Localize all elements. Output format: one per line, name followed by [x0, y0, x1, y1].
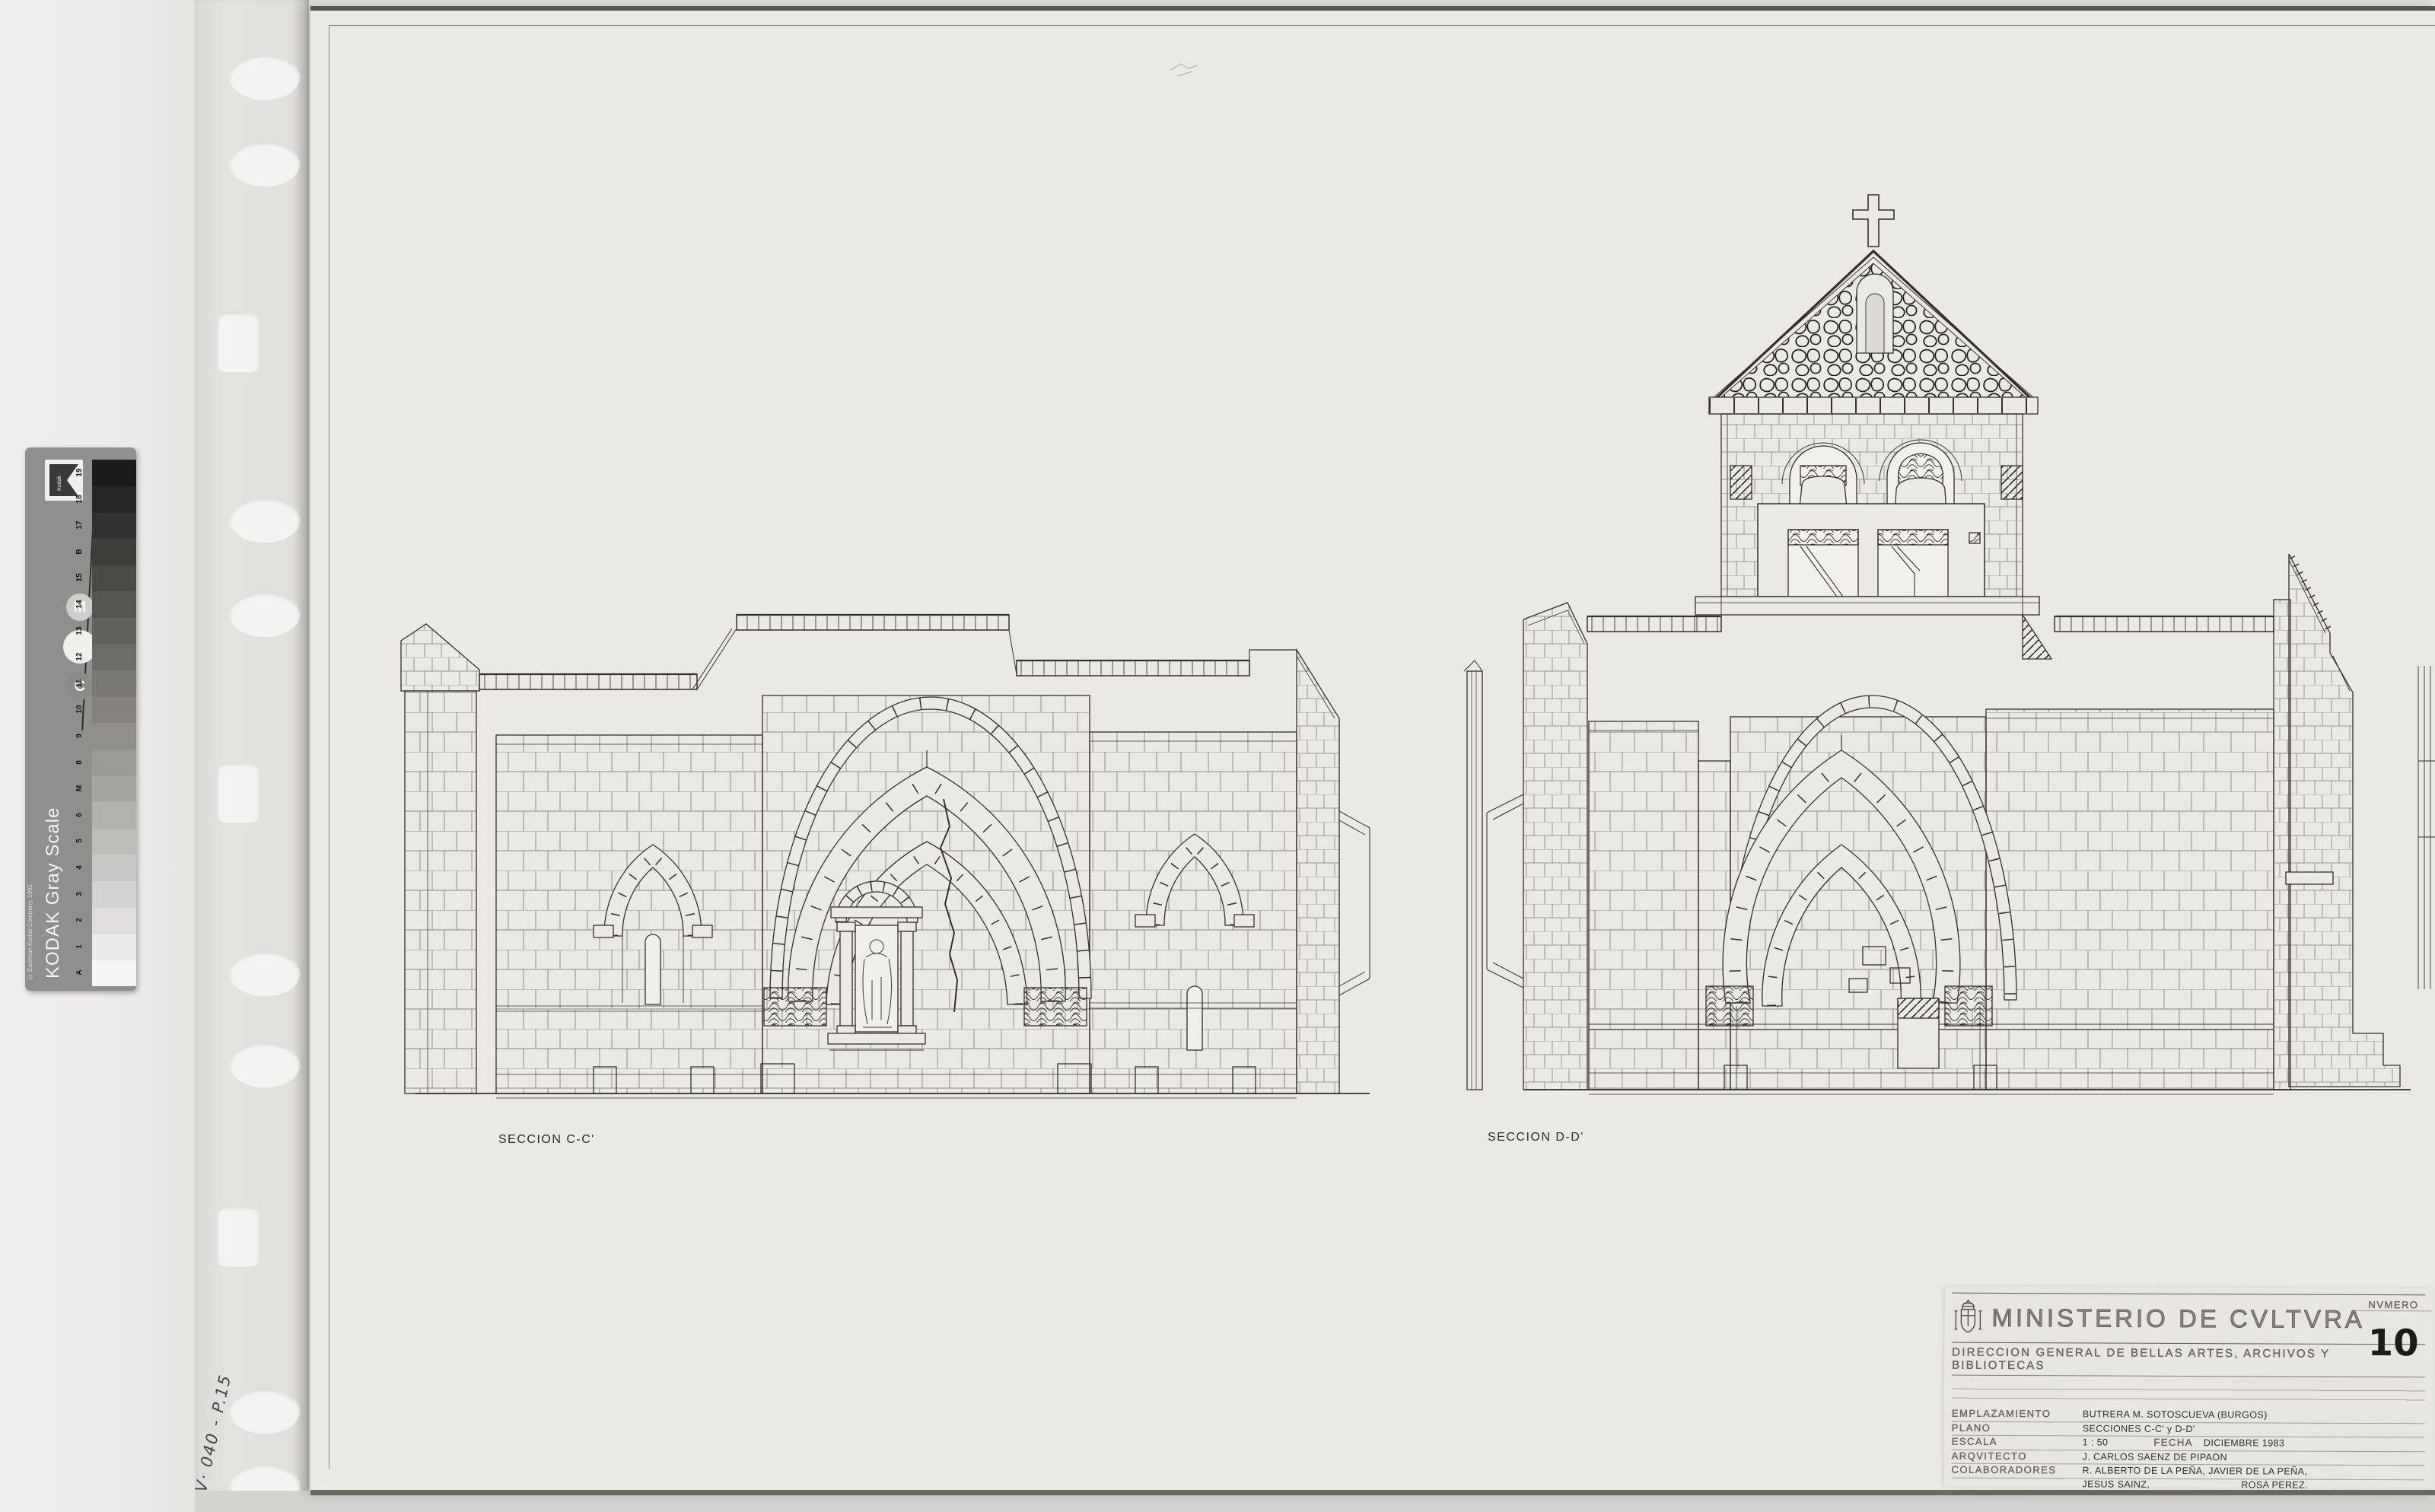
gray-patch-label: 17 [75, 515, 86, 535]
tower-base-ledge [1695, 597, 2039, 615]
church-sections-drawing [0, 0, 2435, 1512]
field-value: R. ALBERTO DE LA PEÑA, JAVIER DE LA PEÑA… [2082, 1465, 2307, 1476]
gray-patch-M [92, 775, 136, 802]
title-block-row: JESUS SAINZ,ROSA PEREZ. [1951, 1478, 2424, 1494]
gray-patch-B [92, 539, 136, 565]
field-value: JESUS SAINZ, [2082, 1479, 2150, 1489]
field-value: 1 : 50 [2083, 1437, 2109, 1447]
field-label: FECHA [2153, 1437, 2193, 1448]
gray-patch-19 [92, 460, 136, 486]
gray-patch-label: 19 [75, 463, 86, 482]
field-value: ROSA PEREZ. [2241, 1479, 2308, 1490]
kodak-gray-scale-strip: Kodak M C KODAK Gray Scale © Eastman Kod… [25, 447, 136, 991]
dd-left-wall [1589, 721, 1698, 1090]
gray-patch-10 [92, 696, 136, 723]
gray-patch-2 [92, 907, 136, 934]
gray-patch-label: 2 [75, 910, 86, 930]
gray-patch-3 [92, 881, 136, 908]
dd-right-wall [1986, 709, 2274, 1090]
dd-bell-gable [1695, 195, 2051, 659]
gray-patch-label: 18 [75, 489, 86, 509]
gray-patch-14 [92, 591, 136, 618]
field-value: BUTRERA M. SOTOSCUEVA (BURGOS) [2083, 1409, 2268, 1420]
gray-patch-label: 14 [75, 594, 86, 614]
field-label: COLABORADORES [1951, 1464, 2082, 1476]
dd-right-buttress [2286, 554, 2400, 1087]
section-dd-label: SECCION D-D' [1488, 1131, 1584, 1144]
section-cc-label: SECCION C-C' [498, 1133, 595, 1147]
cc-carved-capital-right [1024, 988, 1087, 1026]
gray-patch-label: 6 [75, 805, 86, 825]
dd-carved-capital-right [1945, 986, 1992, 1026]
ministry-title: MINISTERIO DE CVLTVRA [1991, 1304, 2365, 1334]
cc-left-wall [496, 735, 762, 1093]
dd-left-buttress [1523, 603, 1587, 1090]
title-block: MINISTERIO DE CVLTVRA DIRECCION GENERAL … [1943, 1287, 2433, 1488]
gray-patch-label: A [75, 963, 86, 982]
cc-roof-parapets [479, 615, 1297, 689]
dd-carved-capital-left [1706, 986, 1753, 1026]
section-dd-drawing [1464, 195, 2435, 1094]
gray-patch-15 [92, 565, 136, 591]
field-label: ARQVITECTO [1952, 1450, 2083, 1462]
gray-patch-11 [92, 670, 136, 697]
field-label [1951, 1486, 2082, 1487]
gray-patch-label: 3 [75, 884, 86, 904]
putlog-hole-left [1730, 466, 1752, 499]
field-label: PLANO [1952, 1421, 2083, 1434]
pencil-smudge [1170, 64, 1198, 76]
field-label: EMPLAZAMIENTO [1952, 1408, 2083, 1420]
gray-patch-18 [92, 486, 136, 513]
gray-patch-A [92, 960, 136, 986]
gray-patch-17 [92, 512, 136, 539]
numero-value: 10 [2355, 1322, 2431, 1364]
field-value: DICIEMBRE 1983 [2204, 1437, 2284, 1448]
cc-right-buttress [1297, 650, 1370, 1093]
gray-patch-label: 15 [75, 568, 86, 587]
gray-patch-4 [92, 855, 136, 881]
section-cc-drawing [401, 615, 1370, 1098]
gray-patch-12 [92, 644, 136, 670]
kodak-logo-text: Kodak [57, 476, 62, 491]
gray-patch-label: B [75, 542, 86, 562]
cc-carved-capital-left [764, 988, 826, 1026]
gable-niche [1857, 274, 1893, 353]
gray-patch-1 [92, 934, 136, 960]
cc-left-buttress [401, 624, 479, 1093]
dd-left-splay [1464, 661, 1523, 1090]
gray-patch-label: 11 [75, 673, 86, 693]
gray-patch-label: 13 [75, 621, 86, 641]
gray-patch-label: M [75, 778, 86, 798]
field-label: ESCALA [1952, 1436, 2083, 1448]
title-block-rules [1952, 1380, 2425, 1402]
coat-of-arms-icon [1952, 1299, 1984, 1337]
gray-patch-9 [92, 723, 136, 750]
ministry-subtitle: DIRECCION GENERAL DE BELLAS ARTES, ARCHI… [1952, 1346, 2425, 1378]
dd-right-edge-fragment [2418, 666, 2435, 989]
gray-patch-8 [92, 750, 136, 776]
gray-patch-5 [92, 828, 136, 855]
tower-roof-hatch [2023, 615, 2051, 659]
gray-patch-6 [92, 802, 136, 829]
putlog-hole-right [2001, 466, 2023, 499]
dd-roof-parapets [1587, 616, 2274, 632]
bell-chamber-cut [1758, 504, 1985, 597]
gray-patch-label: 9 [75, 726, 86, 746]
gray-patch-label: 10 [75, 699, 86, 719]
gable-cross [1853, 195, 1894, 247]
gray-patch-13 [92, 618, 136, 645]
field-value: SECCIONES C-C' y D-D' [2083, 1423, 2195, 1434]
numero-box: NVMERO 10 [2355, 1299, 2431, 1364]
gray-patch-label: 4 [75, 858, 86, 877]
gray-patch-label: 12 [75, 647, 86, 667]
field-value: J. CARLOS SAENZ DE PIPAON [2083, 1451, 2227, 1463]
kodak-copyright-text: © Eastman Kodak Company, 1995 [27, 843, 42, 980]
gray-patch-label: 5 [75, 831, 86, 851]
gray-patch-label: 8 [75, 753, 86, 772]
numero-label: NVMERO [2355, 1299, 2431, 1311]
title-block-fields: EMPLAZAMIENTOBUTRERA M. SOTOSCUEVA (BURG… [1951, 1408, 2424, 1494]
dd-right-step-block [2274, 600, 2290, 1090]
gray-patch-label: 1 [75, 937, 86, 957]
